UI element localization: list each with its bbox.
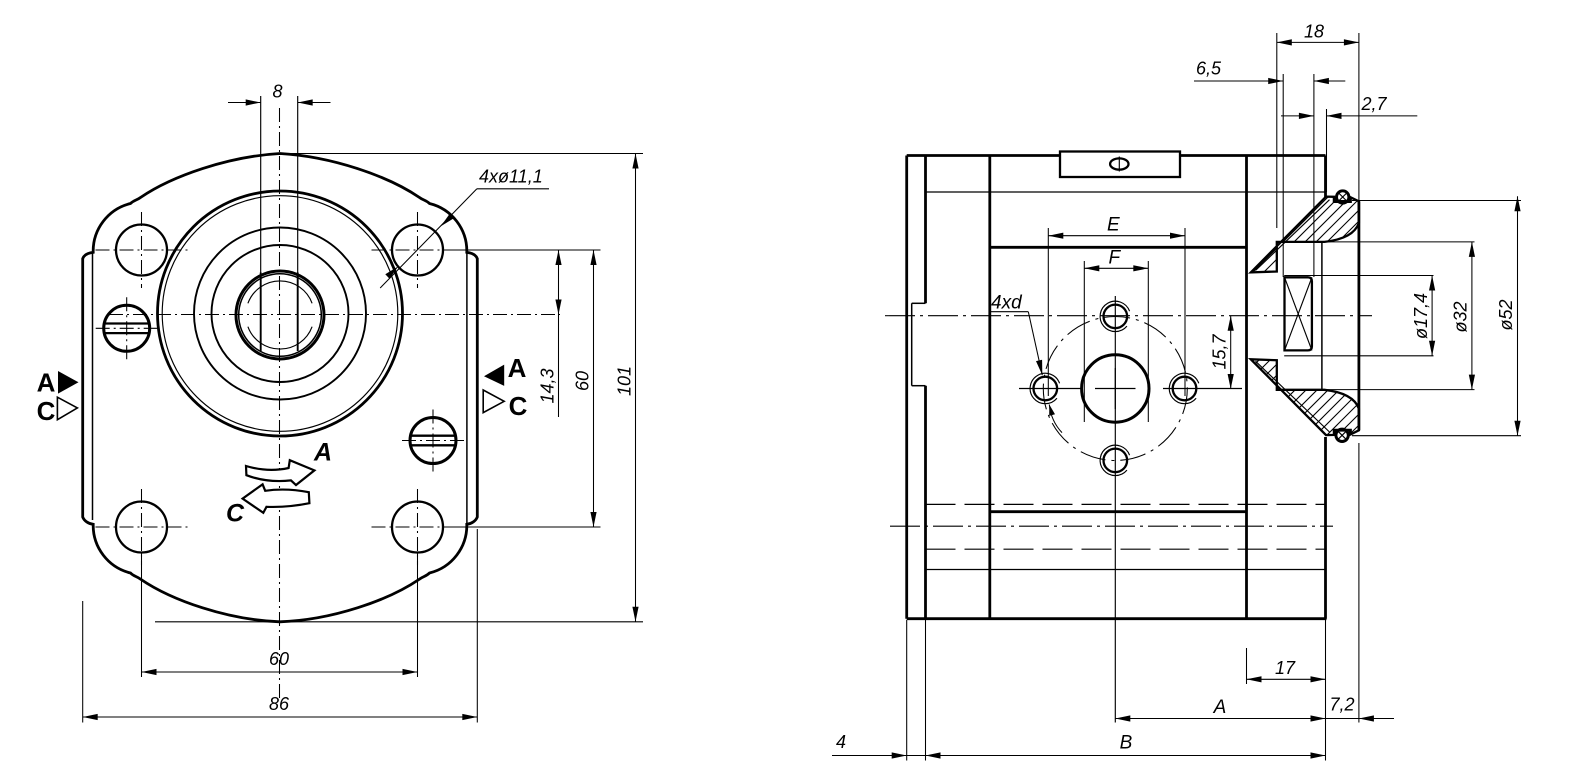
svg-text:14,3: 14,3 <box>538 368 558 403</box>
svg-text:4xd: 4xd <box>991 293 1023 314</box>
svg-text:86: 86 <box>269 694 290 714</box>
svg-text:4xø11,1: 4xø11,1 <box>479 167 543 187</box>
svg-text:F: F <box>1108 247 1121 268</box>
svg-text:E: E <box>1107 215 1120 236</box>
svg-text:C: C <box>226 500 245 528</box>
svg-text:ø32: ø32 <box>1451 301 1471 332</box>
svg-text:C: C <box>509 391 528 421</box>
svg-text:C: C <box>37 396 56 426</box>
svg-text:A: A <box>1213 697 1227 718</box>
svg-text:15,7: 15,7 <box>1210 334 1230 370</box>
svg-text:18: 18 <box>1304 22 1324 42</box>
svg-text:60: 60 <box>573 371 593 391</box>
svg-text:4: 4 <box>836 732 846 752</box>
svg-text:17: 17 <box>1275 658 1296 678</box>
svg-text:ø17,4: ø17,4 <box>1411 293 1431 339</box>
svg-text:ø52: ø52 <box>1496 299 1516 330</box>
svg-text:60: 60 <box>269 649 289 669</box>
svg-text:2,7: 2,7 <box>1360 94 1387 114</box>
svg-text:7,2: 7,2 <box>1329 695 1354 715</box>
svg-text:8: 8 <box>272 82 282 102</box>
svg-text:101: 101 <box>615 366 635 396</box>
svg-text:A: A <box>37 368 56 398</box>
svg-text:A: A <box>508 353 527 383</box>
svg-text:B: B <box>1120 733 1133 754</box>
svg-text:6,5: 6,5 <box>1196 59 1222 79</box>
svg-text:A: A <box>313 439 332 467</box>
